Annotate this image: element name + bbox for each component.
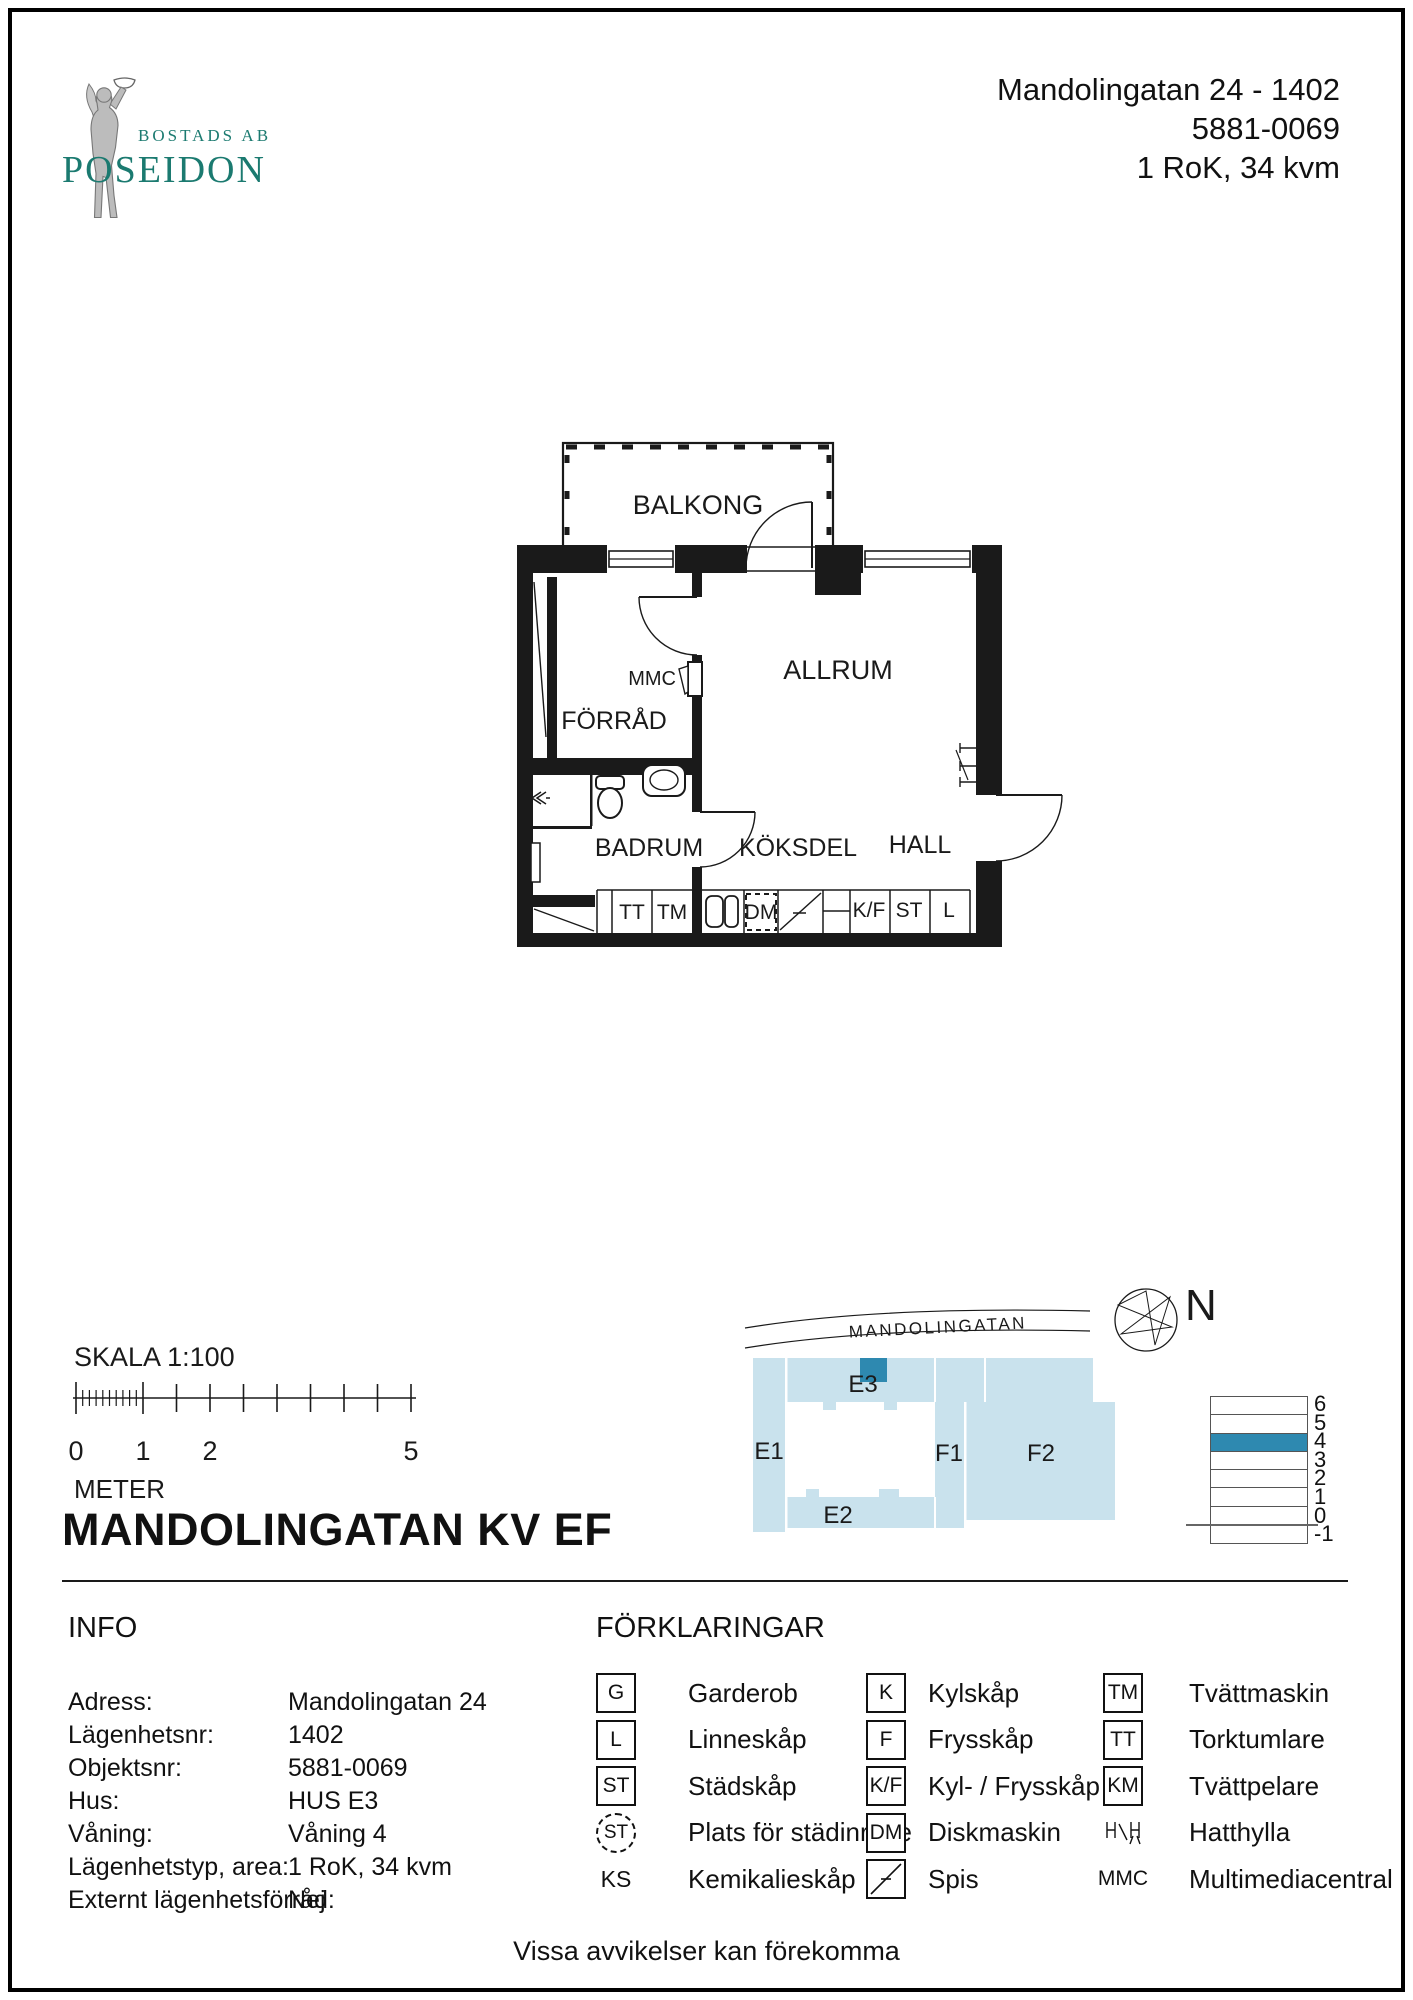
fridge-symbol: K [866,1673,906,1713]
ground-line [1186,1524,1318,1526]
info-row: Våning: Våning 4 [68,1820,518,1853]
toilet [596,776,624,818]
hall-label: HALL [889,831,952,859]
info-label: Hus: [68,1787,119,1816]
legend-row: MMC Multimediacentral [1103,1856,1393,1903]
info-row: Objektsnr: 5881-0069 [68,1754,518,1787]
legend-row: K Kylskåp [866,1670,1100,1717]
vent-icon [532,792,550,804]
info-value: HUS E3 [288,1787,378,1816]
radiator [531,843,540,882]
legend-row: ST Plats för städinrede [596,1810,912,1857]
cleaning-cabinet-symbol: ST [596,1766,636,1806]
window-left [607,545,675,573]
scale-unit: METER [74,1474,165,1504]
legend-label: Kylskåp [928,1678,1019,1709]
building-f2-label: F2 [1027,1440,1055,1467]
legend-row: TT Torktumlare [1103,1717,1393,1764]
floor-row [1211,1452,1307,1470]
info-value: Mandolingatan 24 [288,1688,487,1717]
floor-row [1211,1488,1307,1506]
info-label: Adress: [68,1688,153,1717]
bathroom-label: BADRUM [595,834,703,862]
legend-label: Linneskåp [688,1724,807,1755]
street-label: MANDOLINGATAN [848,1313,1027,1341]
info-value: Våning 4 [288,1820,387,1849]
info-label: Våning: [68,1820,153,1849]
legend-row: Hatthylla [1103,1810,1393,1857]
floor-row [1211,1415,1307,1433]
balcony-door-opening [747,545,815,573]
logo-company-name: POSEIDON [62,148,266,192]
storage-label: FÖRRÅD [561,705,667,735]
freezer-symbol: F [866,1720,906,1760]
street: MANDOLINGATAN [745,1310,1090,1348]
legend-label: Städskåp [688,1771,796,1802]
building-f1-label: F1 [935,1440,963,1467]
washer-cell-label: TM [657,901,687,924]
legend-label: Garderob [688,1678,798,1709]
legend-row: G Garderob [596,1670,912,1717]
info-value: 5881-0069 [288,1754,408,1783]
legend-row: K/F Kyl- / Frysskåp [866,1763,1100,1810]
livingroom-label: ALLRUM [783,655,893,685]
dishwasher-symbol: DM [866,1813,906,1853]
dryer-symbol: TT [1103,1720,1143,1760]
floor-row [1211,1470,1307,1488]
header-apartment-type: 1 RoK, 34 kvm [997,148,1340,187]
legend-column-2: K Kylskåp F Frysskåp K/F Kyl- / Frysskåp… [866,1670,1100,1903]
hat-shelf-icon [956,743,976,787]
info-value: 1 RoK, 34 kvm [288,1853,452,1882]
scale-bar: SKALA 1:100 0 1 2 5 METER [60,1335,480,1505]
floor-plan-drawing: BALKONG [395,330,1075,970]
info-label: Lägenhetsnr: [68,1721,214,1750]
scale-tick-0: 0 [68,1436,83,1466]
legend-row: TM Tvättmaskin [1103,1670,1393,1717]
info-table: Adress: Mandolingatan 24 Lägenhetsnr: 14… [68,1688,518,1919]
dishwasher-cell-label: DM [745,901,778,924]
floor-row [1211,1397,1307,1415]
kitchen-label: KÖKSDEL [739,834,857,862]
floorplan-page: BOSTADS AB POSEIDON Mandolingatan 24 - 1… [0,0,1413,2000]
header-address: Mandolingatan 24 - 1402 [997,70,1340,109]
fridge-freezer-symbol: K/F [866,1766,906,1806]
legend-label: Multimediacentral [1189,1864,1393,1895]
legend-label: Torktumlare [1189,1724,1325,1755]
logo-company-prefix: BOSTADS AB [138,126,271,146]
storage-door [639,597,697,655]
legend-label: Kemikalieskåp [688,1864,856,1895]
cleaning-cabinet-cell-label: ST [896,899,923,922]
info-value: 1402 [288,1721,344,1750]
scale-tick-5: 5 [403,1436,418,1466]
header-object-number: 5881-0069 [997,109,1340,148]
legend-row: L Linneskåp [596,1717,912,1764]
legend-heading: FÖRKLARINGAR [596,1612,825,1645]
legend-label: Kyl- / Frysskåp [928,1771,1100,1802]
info-row: Adress: Mandolingatan 24 [68,1688,518,1721]
compass-icon [1115,1289,1177,1351]
info-row: Lägenhetsnr: 1402 [68,1721,518,1754]
scale-tick-2: 2 [202,1436,217,1466]
floor-number: -1 [1314,1524,1334,1543]
legend-label: Tvättmaskin [1189,1678,1329,1709]
legend-column-1: G Garderob L Linneskåp ST Städskåp ST Pl… [596,1670,912,1903]
building-e1-label: E1 [754,1438,783,1465]
shaft-diagonal [534,582,546,737]
info-label: Objektsnr: [68,1754,182,1783]
washing-machine-symbol: TM [1103,1673,1143,1713]
floor-row-highlighted [1211,1434,1307,1452]
corner-shaft-diagonal [534,909,594,931]
hat-shelf-symbol-icon [1103,1813,1143,1853]
window-right [863,545,972,573]
bathroom-sink [643,765,685,796]
info-row: Lägenhetstyp, area: 1 RoK, 34 kvm [68,1853,518,1886]
fridge-freezer-cell-label: K/F [853,899,886,922]
legend-row: KS Kemikalieskåp [596,1856,912,1903]
section-divider [62,1580,1348,1582]
linen-cabinet-symbol: L [596,1720,636,1760]
mmc-label: MMC [628,668,676,690]
washer-dryer-tower-symbol: KM [1103,1766,1143,1806]
legend-row: ST Städskåp [596,1763,912,1810]
mmc-unit: MMC [628,662,702,696]
legend-label: Hatthylla [1189,1817,1290,1848]
legend-label: Diskmaskin [928,1817,1061,1848]
legend-row: DM Diskmaskin [866,1810,1100,1857]
info-row: Externt lägenhetsförråd: Nej [68,1886,518,1919]
disclaimer-note: Vissa avvikelser kan förekomma [0,1936,1413,1967]
info-heading: INFO [68,1612,137,1645]
linen-cabinet-cell-label: L [943,899,955,922]
floor-row [1211,1525,1307,1543]
walls [517,545,1002,947]
floor-row [1211,1507,1307,1525]
apartment-header: Mandolingatan 24 - 1402 5881-0069 1 RoK,… [997,70,1340,187]
scale-label: SKALA 1:100 [74,1342,235,1372]
legend-row: Spis [866,1856,1100,1903]
cleaning-space-symbol: ST [596,1813,636,1853]
dryer-cell-label: TT [619,901,645,924]
stove-icon [780,893,821,930]
legend-row: KM Tvättpelare [1103,1763,1393,1810]
balcony-label: BALKONG [633,490,764,520]
legend-row: F Frysskåp [866,1717,1100,1764]
scale-tick-1: 1 [135,1436,150,1466]
multimedia-central-symbol: MMC [1103,1859,1143,1899]
legend-column-3: TM Tvättmaskin TT Torktumlare KM Tvättpe… [1103,1670,1393,1903]
stove-symbol-icon [866,1859,906,1899]
floor-level-numbers: 6 5 4 3 2 1 0 -1 [1314,1394,1334,1543]
info-value: Nej [288,1886,326,1915]
legend-label: Spis [928,1864,979,1895]
north-label: N [1185,1281,1217,1330]
page-title: MANDOLINGATAN KV EF [62,1504,612,1556]
entrance-door [996,795,1062,861]
wardrobe-symbol: G [596,1673,636,1713]
info-row: Hus: HUS E3 [68,1787,518,1820]
site-plan: MANDOLINGATAN E1 E3 F1 F2 E2 [580,1275,1220,1545]
legend-label: Tvättpelare [1189,1771,1319,1802]
floor-level-indicator [1210,1396,1308,1544]
chemical-cabinet-symbol: KS [596,1859,636,1899]
building-e2-label: E2 [823,1502,852,1529]
legend-label: Frysskåp [928,1724,1033,1755]
kitchen-sink [706,896,738,927]
building-e3-label: E3 [848,1371,877,1398]
info-label: Lägenhetstyp, area: [68,1853,289,1882]
